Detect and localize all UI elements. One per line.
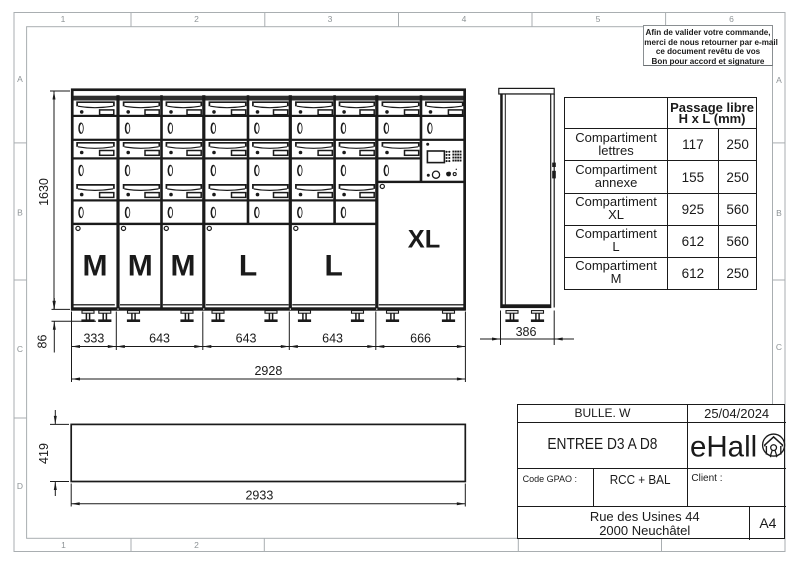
- svg-text:2: 2: [194, 14, 199, 24]
- svg-text:386: 386: [516, 325, 537, 339]
- svg-text:2: 2: [194, 540, 199, 550]
- svg-text:643: 643: [322, 332, 343, 346]
- svg-text:XL: XL: [408, 226, 440, 254]
- svg-text:C: C: [776, 342, 782, 352]
- svg-text:643: 643: [236, 332, 257, 346]
- svg-text:A: A: [776, 75, 782, 85]
- svg-text:L: L: [239, 249, 257, 282]
- svg-text:4: 4: [462, 14, 467, 24]
- svg-text:B: B: [17, 208, 23, 218]
- svg-text:C: C: [17, 344, 23, 354]
- svg-text:M: M: [128, 249, 153, 282]
- svg-text:419: 419: [37, 443, 51, 464]
- svg-text:86: 86: [36, 335, 50, 349]
- svg-text:D: D: [17, 481, 23, 491]
- svg-text:1: 1: [61, 540, 66, 550]
- svg-text:643: 643: [149, 332, 170, 346]
- svg-text:6: 6: [729, 14, 734, 24]
- svg-text:2933: 2933: [245, 489, 273, 503]
- svg-text:A: A: [17, 74, 23, 84]
- svg-text:L: L: [325, 249, 343, 282]
- svg-text:M: M: [171, 249, 196, 282]
- svg-text:M: M: [83, 249, 108, 282]
- svg-text:1: 1: [61, 14, 66, 24]
- svg-text:B: B: [776, 208, 782, 218]
- svg-text:666: 666: [410, 332, 431, 346]
- svg-text:eHall: eHall: [690, 430, 757, 463]
- svg-text:3: 3: [328, 14, 333, 24]
- svg-text:2928: 2928: [254, 364, 282, 378]
- svg-text:333: 333: [83, 332, 104, 346]
- svg-text:1630: 1630: [37, 178, 51, 206]
- svg-text:5: 5: [596, 14, 601, 24]
